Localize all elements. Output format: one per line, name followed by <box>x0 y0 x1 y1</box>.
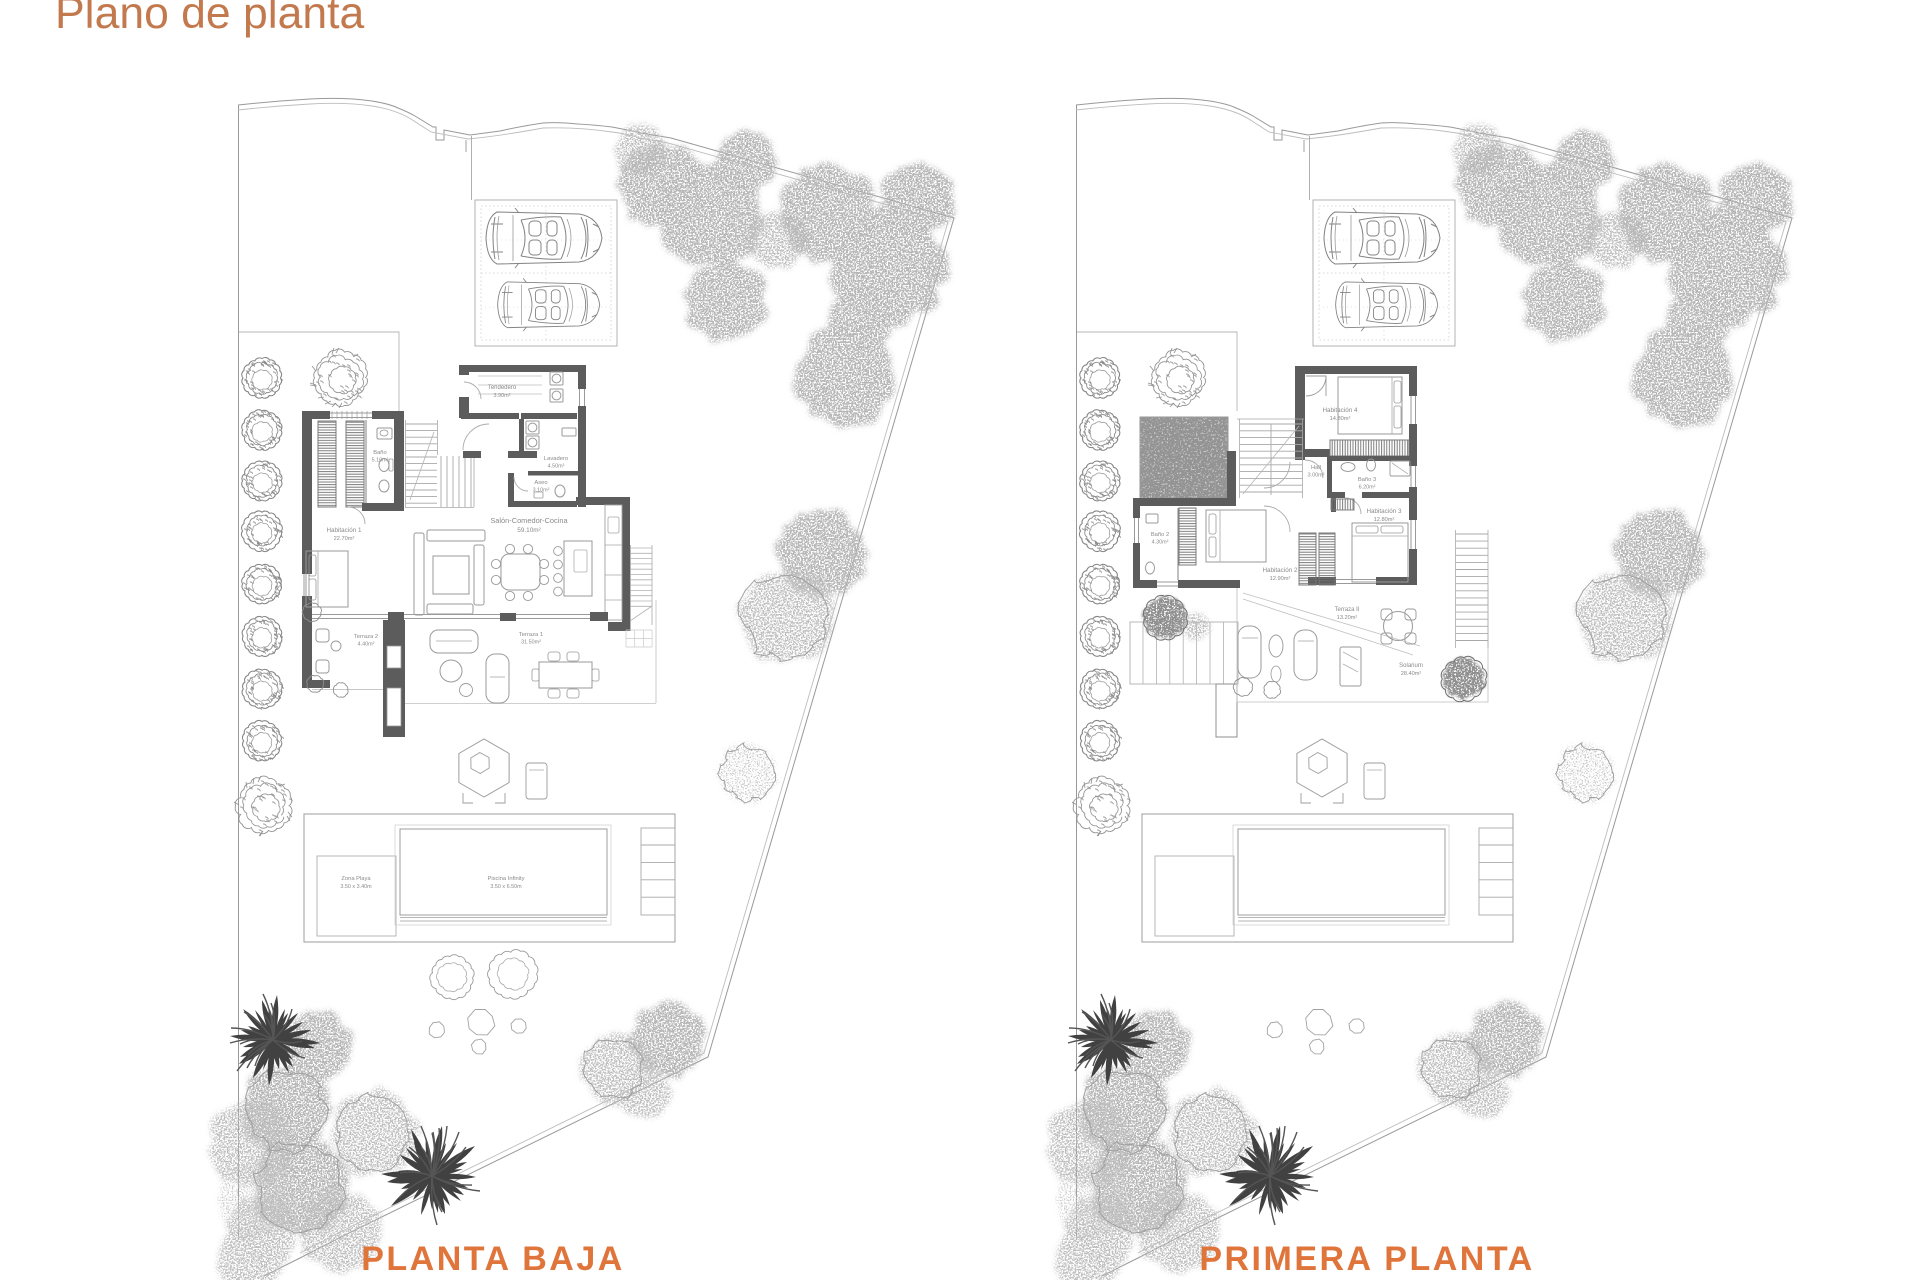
svg-text:Terraza 2: Terraza 2 <box>354 634 378 640</box>
svg-text:3.50 x 3.40m: 3.50 x 3.40m <box>340 884 372 890</box>
svg-text:Baño 3: Baño 3 <box>1358 477 1376 483</box>
svg-text:3.50 x 6.50m: 3.50 x 6.50m <box>490 884 522 890</box>
svg-text:Baño 2: Baño 2 <box>1151 532 1169 538</box>
svg-text:Piscina Infinity: Piscina Infinity <box>487 876 524 882</box>
svg-text:3.00m²: 3.00m² <box>1308 473 1325 479</box>
svg-text:Solarium: Solarium <box>1399 663 1423 669</box>
svg-text:PLANTA BAJA: PLANTA BAJA <box>361 1240 625 1278</box>
svg-text:5.10m²: 5.10m² <box>372 458 389 464</box>
svg-text:Tendedero: Tendedero <box>488 385 517 391</box>
svg-text:59.10m²: 59.10m² <box>517 527 540 534</box>
svg-text:12.90m²: 12.90m² <box>1270 576 1291 582</box>
svg-text:Aseo: Aseo <box>534 480 547 486</box>
svg-text:Lavadero: Lavadero <box>544 456 568 462</box>
svg-text:Habitación 3: Habitación 3 <box>1366 508 1402 515</box>
svg-text:4.50m²: 4.50m² <box>548 464 565 470</box>
svg-text:12.80m²: 12.80m² <box>1374 517 1395 523</box>
svg-text:Habitación 1: Habitación 1 <box>326 527 362 534</box>
svg-text:22.70m²: 22.70m² <box>334 536 355 542</box>
svg-text:Zona Playa: Zona Playa <box>341 876 371 882</box>
svg-text:Hall: Hall <box>1311 465 1321 471</box>
svg-text:Habitación 4: Habitación 4 <box>1322 407 1358 414</box>
svg-text:4.40m²: 4.40m² <box>358 642 375 648</box>
svg-text:3.90m²: 3.90m² <box>493 393 510 399</box>
svg-text:28.40m²: 28.40m² <box>1401 671 1422 677</box>
svg-text:Habitación 2: Habitación 2 <box>1262 567 1298 574</box>
svg-text:13.20m²: 13.20m² <box>1337 615 1358 621</box>
svg-text:Salón-Comedor-Cocina: Salón-Comedor-Cocina <box>490 516 568 525</box>
svg-text:4.30m²: 4.30m² <box>1152 540 1169 546</box>
svg-text:3.10m²: 3.10m² <box>533 488 550 494</box>
svg-text:14.80m²: 14.80m² <box>1330 416 1351 422</box>
svg-text:Terraza II: Terraza II <box>1334 607 1359 613</box>
svg-text:Baño: Baño <box>373 450 387 456</box>
svg-text:31.50m²: 31.50m² <box>521 640 541 646</box>
svg-text:Plano de planta: Plano de planta <box>55 0 365 38</box>
svg-text:PRIMERA PLANTA: PRIMERA PLANTA <box>1199 1240 1534 1278</box>
svg-text:Terraza 1: Terraza 1 <box>519 632 543 638</box>
svg-text:6.20m²: 6.20m² <box>1359 485 1376 491</box>
